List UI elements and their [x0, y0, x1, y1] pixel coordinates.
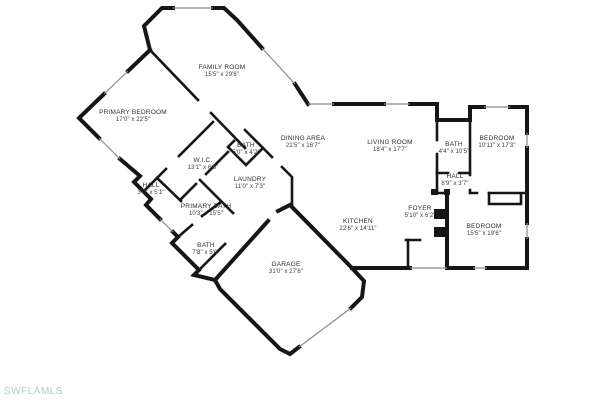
interior-walls: [145, 50, 527, 270]
floor-plan-page: FAMILY ROOM 15'5" x 29'6" PRIMARY BEDROO…: [0, 0, 600, 400]
floor-plan-drawing: [0, 0, 600, 400]
window-lines: [99, 8, 527, 347]
mls-watermark: SWFLAMLS: [4, 386, 63, 397]
exterior-walls: [79, 8, 527, 280]
garage-walls: [215, 205, 364, 354]
